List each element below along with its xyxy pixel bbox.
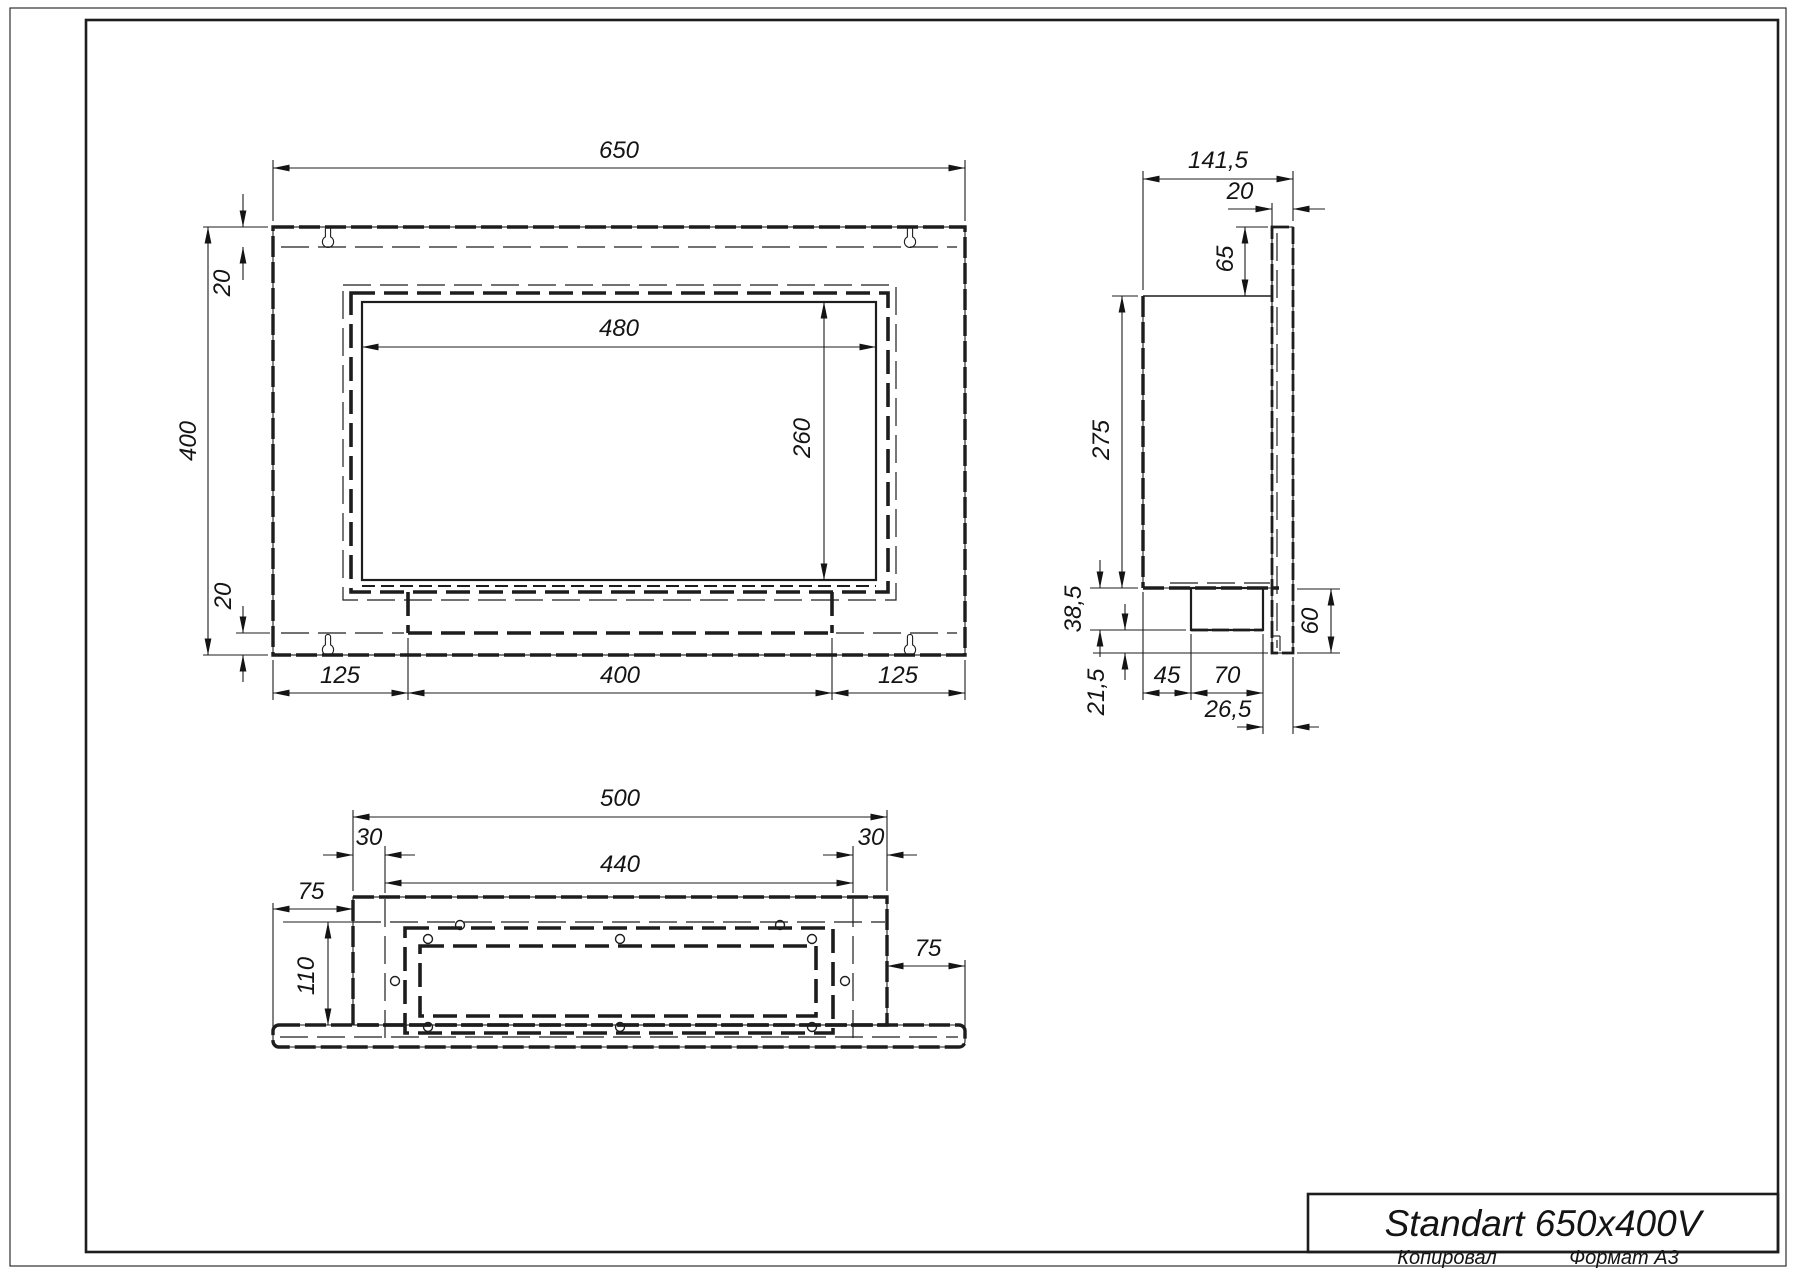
dim-front-top-inset: 20 — [209, 269, 236, 297]
dim-front-height: 400 — [175, 420, 202, 461]
title-block-name: Standart 650x400V — [1385, 1203, 1705, 1244]
dim-side-body-height: 275 — [1088, 419, 1115, 461]
keyhole-bottom-right — [904, 634, 915, 655]
dim-front-bottom-inset: 20 — [210, 582, 237, 610]
dim-bottom-wing-right: 75 — [915, 935, 942, 962]
dim-front-margin-right: 125 — [878, 662, 919, 689]
dim-bottom-width: 500 — [600, 785, 641, 812]
dim-front-width: 650 — [599, 137, 640, 164]
dim-side-flange: 20 — [1226, 178, 1254, 205]
side-view-dimensions: 141,5 20 65 275 38,5 21,5 60 — [1060, 147, 1340, 734]
screw-hole — [808, 935, 817, 944]
dim-side-burner-width: 70 — [1214, 662, 1241, 689]
front-view-dimensions: 650 400 20 20 480 260 125 400 125 — [175, 137, 965, 700]
dim-side-corner-offset: 26,5 — [1204, 696, 1252, 723]
screw-hole — [424, 935, 433, 944]
keyhole-top-right — [904, 226, 915, 247]
keyhole-bottom-left — [322, 634, 333, 655]
dim-side-tray-lip: 21,5 — [1083, 668, 1110, 716]
screw-hole — [616, 935, 625, 944]
dim-bottom-inset-right: 30 — [858, 824, 885, 851]
dim-bottom-inset-left: 30 — [356, 824, 383, 851]
dim-side-burner-offset: 45 — [1154, 662, 1181, 689]
dim-window-width: 480 — [599, 315, 640, 342]
footer-format-label: Формат А3 — [1569, 1247, 1678, 1269]
front-view — [273, 226, 965, 655]
footer-copied-label: Копировал — [1397, 1247, 1496, 1269]
technical-drawing: 650 400 20 20 480 260 125 400 125 — [0, 0, 1800, 1273]
dim-bottom-depth: 110 — [293, 956, 320, 995]
keyhole-top-left — [322, 226, 333, 247]
dim-front-tray-width: 400 — [600, 662, 641, 689]
dim-front-margin-left: 125 — [320, 662, 361, 689]
title-block: Standart 650x400V — [1308, 1194, 1778, 1252]
bottom-view-dimensions: 500 30 30 440 75 75 110 — [273, 785, 965, 1030]
dim-side-bottom-height: 60 — [1297, 607, 1324, 634]
dim-side-tray-depth: 38,5 — [1060, 585, 1087, 632]
screw-hole — [391, 977, 400, 986]
bottom-view — [273, 897, 965, 1047]
dim-bottom-wing-left: 75 — [298, 878, 325, 905]
dim-bottom-opening: 440 — [600, 851, 641, 878]
page-border — [10, 8, 1786, 1266]
screw-hole — [841, 977, 850, 986]
drawing-sheet: 650 400 20 20 480 260 125 400 125 — [0, 0, 1800, 1273]
side-view — [1143, 227, 1293, 653]
dim-window-height: 260 — [789, 417, 816, 459]
dim-side-depth: 141,5 — [1188, 147, 1249, 174]
dim-side-top-offset: 65 — [1212, 245, 1239, 272]
